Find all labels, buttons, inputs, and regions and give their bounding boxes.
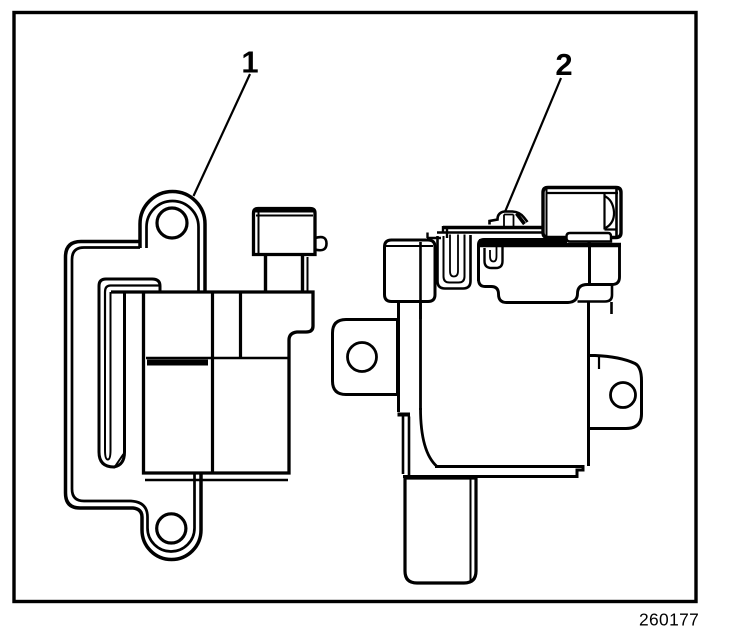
svg-text:260177: 260177 [639,610,699,630]
svg-text:2: 2 [555,47,572,82]
